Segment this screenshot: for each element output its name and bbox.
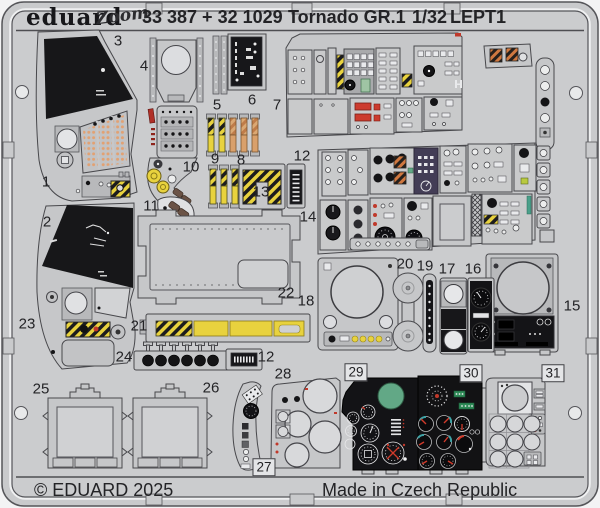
part-number-3: 3: [114, 34, 122, 49]
part-number-9: 9: [211, 152, 219, 167]
pe-part-19: [423, 274, 436, 352]
pe-part-21: [140, 314, 310, 342]
pe-part-29: [342, 378, 420, 474]
part-number-19: 19: [417, 259, 434, 274]
pe-part-2-23: [37, 203, 135, 369]
made-in: Made in Czech Republic: [322, 480, 517, 501]
eduard-pe-sheet: eduard Zoom 33 387 + 32 1029 Tornado GR.…: [0, 0, 600, 508]
part-number-11: 11: [143, 199, 159, 214]
part-number-5: 5: [213, 98, 221, 113]
part-number-22: 22: [278, 286, 295, 301]
part-number-6: 6: [248, 93, 256, 108]
pe-part-22: [138, 210, 300, 304]
part-number-25: 25: [33, 382, 50, 397]
pe-part-7: [286, 33, 462, 137]
sheet-code: LEPT1: [450, 7, 506, 28]
part-number-16: 16: [465, 262, 482, 277]
pe-part-31: [486, 378, 545, 468]
part-number-2: 2: [43, 215, 51, 230]
pe-part-17: [440, 278, 467, 354]
part-number-18: 18: [298, 294, 315, 309]
pe-part-30: [417, 376, 491, 474]
pe-lower-bars: [209, 165, 240, 208]
part-number-13: 13: [253, 185, 270, 200]
part-number-12b: 12: [258, 350, 275, 365]
part-number-8: 8: [237, 153, 245, 168]
part-number-14: 14: [300, 210, 317, 225]
part-number-21: 21: [131, 319, 148, 334]
part-number-24: 24: [116, 350, 133, 365]
pe-fret-graphic: [0, 0, 600, 508]
part-number-1: 1: [42, 175, 50, 190]
part-number-15: 15: [564, 299, 581, 314]
pe-part-12-top: [287, 164, 305, 208]
part-number-4: 4: [140, 59, 148, 74]
part-number-31: 31: [541, 364, 564, 382]
part-number-20: 20: [397, 257, 414, 272]
copyright: © EDUARD 2025: [34, 480, 173, 501]
pe-part-28: [271, 378, 341, 468]
part-number-23: 23: [19, 317, 36, 332]
part-number-30: 30: [459, 364, 482, 382]
part-number-10: 10: [183, 160, 200, 175]
kit-title: Tornado GR.1: [288, 7, 406, 28]
pe-part-15: [486, 254, 558, 355]
pe-part-18: [318, 258, 398, 350]
part-number-27: 27: [252, 458, 275, 476]
part-number-17: 17: [439, 262, 456, 277]
part-number-12a: 12: [294, 149, 311, 164]
part-number-7: 7: [273, 98, 281, 113]
part-number-28: 28: [275, 367, 292, 382]
pe-part-6: [228, 34, 266, 90]
pe-part-16: [468, 278, 494, 352]
part-number-26: 26: [203, 381, 220, 396]
pe-part-12-bottom: [226, 349, 262, 370]
catalog-numbers: 33 387 + 32 1029: [142, 7, 283, 28]
pe-part-14: [318, 143, 554, 254]
scale: 1/32: [412, 7, 447, 28]
part-number-29: 29: [344, 363, 367, 381]
